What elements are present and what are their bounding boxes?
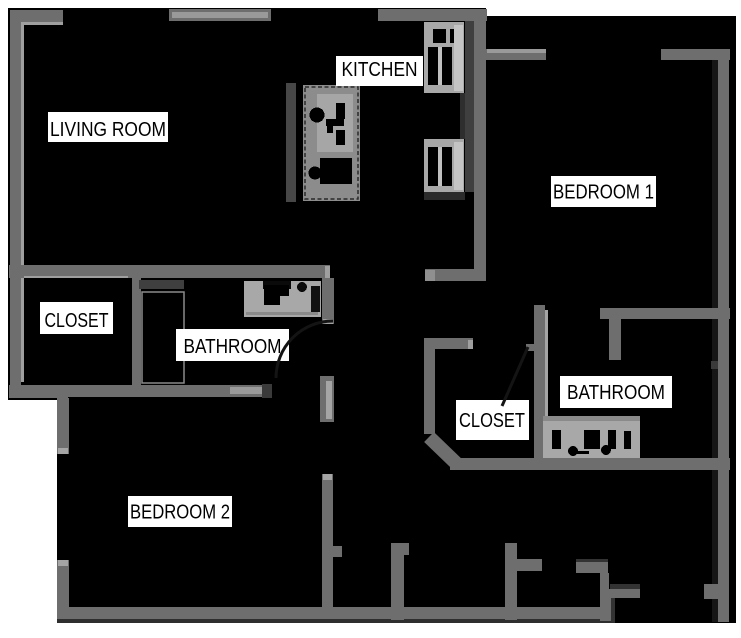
svg-text:BATHROOM: BATHROOM bbox=[567, 382, 665, 404]
svg-text:BEDROOM 1: BEDROOM 1 bbox=[553, 182, 654, 204]
svg-text:BATHROOM: BATHROOM bbox=[184, 336, 282, 358]
svg-text:CLOSET: CLOSET bbox=[45, 310, 109, 332]
svg-text:CLOSET: CLOSET bbox=[459, 410, 525, 432]
svg-text:BEDROOM 2: BEDROOM 2 bbox=[130, 502, 230, 524]
svg-text:LIVING ROOM: LIVING ROOM bbox=[50, 119, 166, 141]
svg-text:KITCHEN: KITCHEN bbox=[342, 59, 418, 81]
